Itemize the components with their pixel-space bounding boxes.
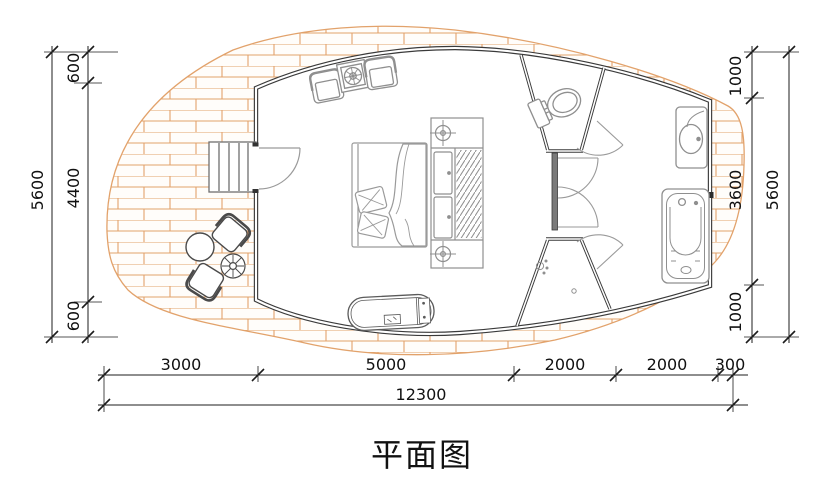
outdoor-round-table [186,233,214,261]
dim-right-3600: 3600 [726,170,745,211]
double-bed [352,143,427,247]
floor-plan-drawing: 600 4400 600 5600 1000 3600 1000 5600 30… [0,0,837,496]
dim-bottom-2000-a: 2000 [545,355,586,374]
dim-right-1000-top: 1000 [726,56,745,97]
dim-left-4400: 4400 [64,168,83,209]
flower-stand [221,254,245,278]
dim-bottom-2000-b: 2000 [647,355,688,374]
floor-plan-page: 600 4400 600 5600 1000 3600 1000 5600 30… [0,0,837,496]
dim-bottom-5000: 5000 [366,355,407,374]
bathtub [662,189,709,283]
armchair-right [364,56,398,90]
chaise-lounge [347,294,435,331]
drawing-title: 平面图 [371,436,473,474]
hall-partition-wall [552,153,558,230]
dim-bottom-3000: 3000 [161,355,202,374]
dim-right-1000-bottom: 1000 [726,292,745,333]
stairs [209,142,256,192]
dim-bottom-300: 300 [715,355,746,374]
dim-right-5600: 5600 [763,170,782,211]
wardrobe-with-hangers [430,118,483,268]
dim-left-5600: 5600 [28,170,47,211]
dim-left-600-top: 600 [64,53,83,84]
dim-left-600-bottom: 600 [64,301,83,332]
wash-basin [676,107,707,168]
dim-bottom-12300: 12300 [396,385,447,404]
